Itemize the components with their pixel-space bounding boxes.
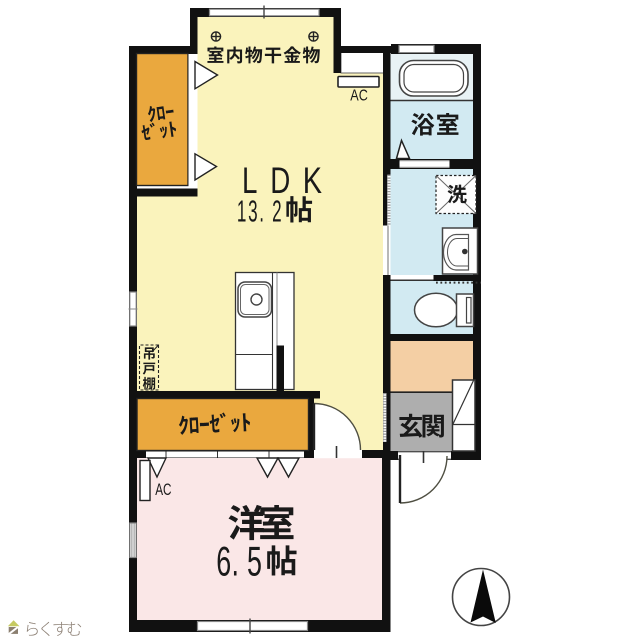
- svg-text:K: K: [303, 161, 322, 202]
- svg-text:AC: AC: [350, 87, 368, 105]
- svg-text:AC: AC: [155, 481, 171, 499]
- svg-text:6. 5: 6. 5: [216, 538, 262, 584]
- svg-text:13. 2: 13. 2: [237, 196, 283, 229]
